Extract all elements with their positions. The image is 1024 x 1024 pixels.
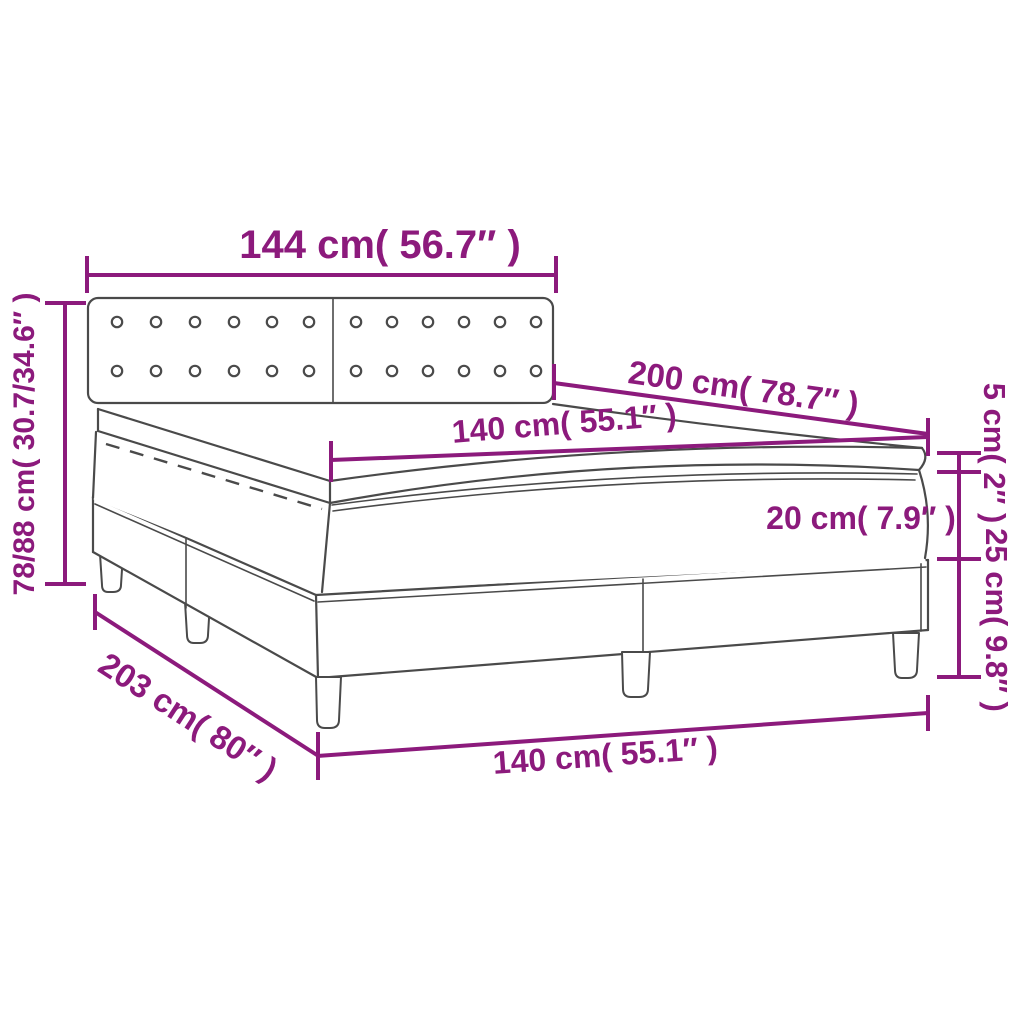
dim-label-overall-height: 78/88 cm( 30.7/34.6″ ) <box>8 293 41 596</box>
dim-label-base-height: 25 cm( 9.8″ ) <box>979 528 1014 712</box>
dim-mattress-width-front: 140 cm( 55.1″ ) <box>317 695 928 781</box>
bed-dimension-diagram: 144 cm( 56.7″ ) 200 cm( 78.7″ ) 140 cm( … <box>0 0 1024 1024</box>
dim-headboard-width: 144 cm( 56.7″ ) <box>87 223 556 293</box>
headboard <box>88 298 553 403</box>
dim-label-topper-thickness: 5 cm( 2″ ) <box>977 383 1012 524</box>
dim-label-mattress-width-front: 140 cm( 55.1″ ) <box>492 729 719 781</box>
diagram-canvas: 144 cm( 56.7″ ) 200 cm( 78.7″ ) 140 cm( … <box>0 0 1024 1024</box>
bed-leg <box>893 633 919 678</box>
dim-label-headboard-width: 144 cm( 56.7″ ) <box>239 223 521 267</box>
dim-right-heights: 5 cm( 2″ ) 25 cm( 9.8″ ) <box>937 383 1014 712</box>
bed-leg <box>316 677 341 728</box>
bed-leg <box>622 652 650 697</box>
headboard-panel <box>88 298 553 403</box>
dim-label-mattress-thickness: 20 cm( 7.9″ ) <box>766 500 956 536</box>
dim-overall-height: 78/88 cm( 30.7/34.6″ ) <box>8 293 86 596</box>
